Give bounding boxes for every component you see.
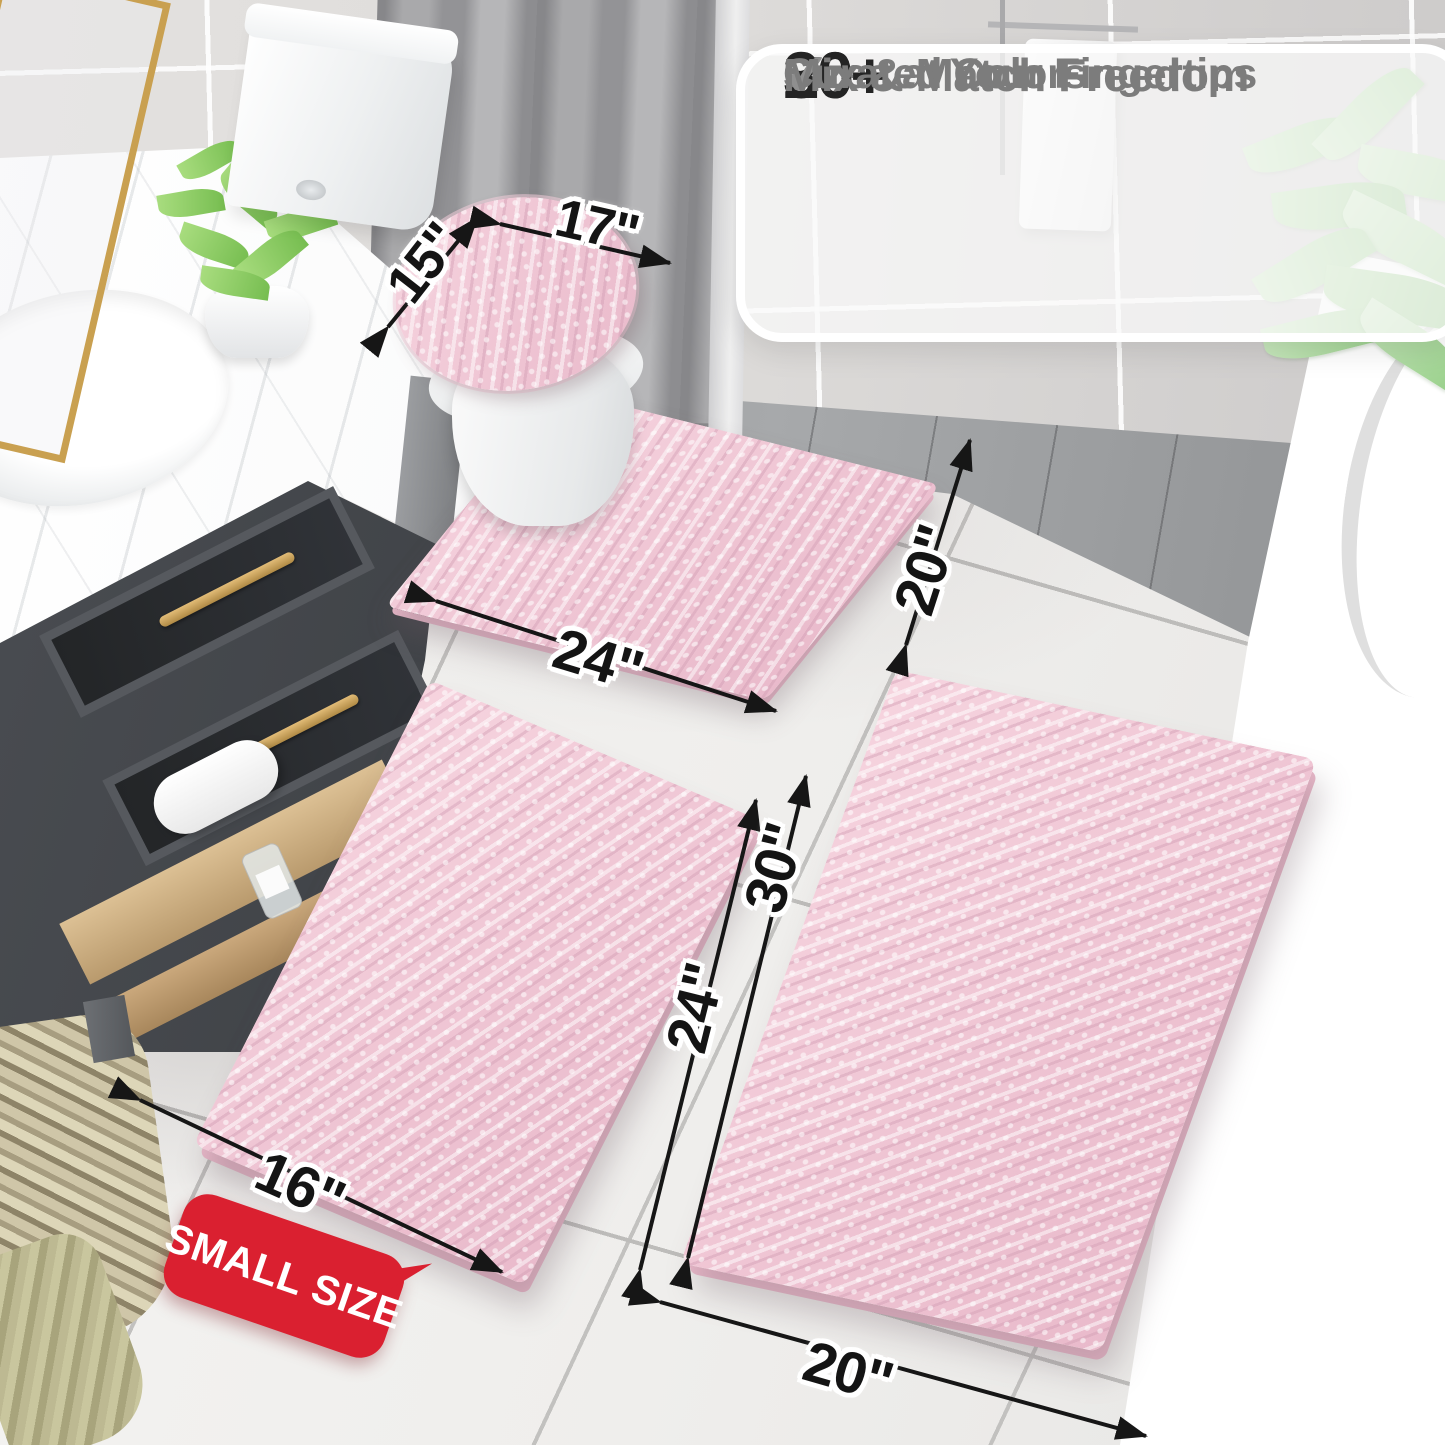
leaf-icon — [156, 184, 226, 221]
feature-callout-panel: ✔ 20+ Sizes at Your Fingertips ✔ 30+ Cur… — [736, 44, 1445, 342]
callout-label: Mix & Match Freedom — [783, 51, 1249, 99]
toilet-tank — [225, 11, 456, 234]
product-photo-bath-rug-set: 15" 17" 24" 20" 24" 30" 16" 20" ✔ 20+ Si… — [0, 0, 1445, 1445]
